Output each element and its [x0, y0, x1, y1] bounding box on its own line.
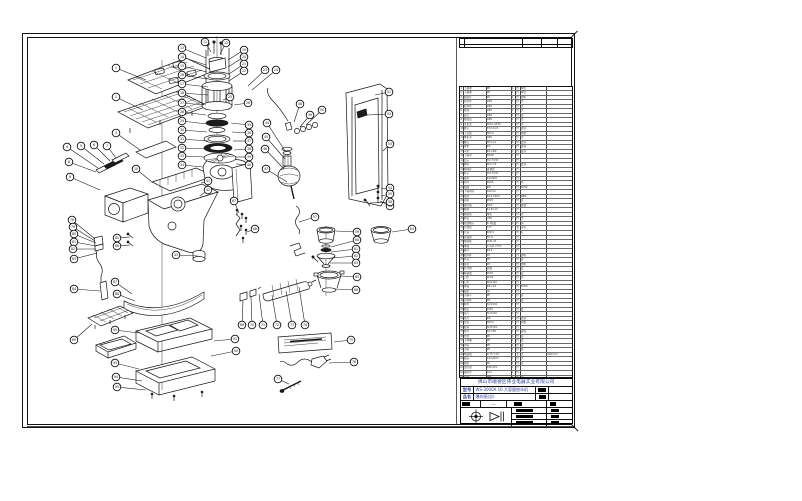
bom-cell: Φ18 — [487, 249, 512, 253]
balloon-number: 90 — [113, 328, 117, 332]
bom-cell: 本色 — [521, 87, 547, 91]
bom-cell — [521, 159, 547, 163]
bom-cell: 视窗盒 — [464, 118, 487, 122]
balloon-number: 59 — [355, 230, 359, 234]
bom-cell: Φ6×20 — [487, 285, 512, 289]
bom-cell: ABS — [487, 217, 512, 221]
bom-cell: 端盖 — [464, 308, 487, 312]
bom-cell: 镀锌 — [521, 145, 547, 149]
bom-cell: M4×70 — [487, 163, 512, 167]
balloon-number: 43 — [174, 253, 178, 257]
part-motor-stack — [202, 41, 236, 163]
bom-cell — [547, 335, 573, 339]
balloon-number: 64 — [410, 227, 414, 231]
balloon-number: 37 — [247, 139, 251, 143]
bom-cell: PP — [487, 299, 512, 303]
balloon-number: 27 — [180, 101, 184, 105]
bom-cell: 碳刷 — [464, 208, 487, 212]
bom-cell: Φ4×Φ9 — [487, 150, 512, 154]
balloon-number: 58 — [388, 200, 392, 204]
bom-cell: 白 — [521, 335, 547, 339]
bom-cell: PC — [487, 254, 512, 258]
bom-cell: 挡圈 — [464, 186, 487, 190]
bom-cell: 螺钉 — [464, 141, 487, 145]
bom-cell: 磁环 — [464, 249, 487, 253]
balloon-number: 17 — [180, 82, 184, 86]
bom-cell: 小漏斗 — [464, 294, 487, 298]
bom-cell: 量杯 — [464, 263, 487, 267]
part-small-grid-tray — [88, 306, 133, 329]
sheet-label — [536, 394, 549, 400]
balloon-number: 41 — [206, 179, 210, 183]
bom-cell: 刷盖 — [464, 217, 487, 221]
bom-cell: 青稞纸 — [487, 168, 512, 172]
balloon-number: 20 — [242, 55, 246, 59]
version-cell — [547, 401, 572, 407]
bom-cell: 轴套 — [464, 290, 487, 294]
part-bumper-band — [124, 292, 204, 316]
balloon-number: 19 — [242, 48, 246, 52]
bom-cell: 上盖板 — [464, 132, 487, 136]
bom-cell — [547, 100, 573, 104]
balloon-number: 71 — [261, 323, 265, 327]
bom-cell: 齿轮 — [464, 199, 487, 203]
bom-cell — [547, 168, 573, 172]
balloon-number: 9 — [69, 175, 71, 179]
bom-cell: Φ4 — [487, 145, 512, 149]
bom-cell: 面壳 — [464, 114, 487, 118]
balloon-number: 48 — [298, 102, 302, 106]
bom-cell: ABS — [487, 105, 512, 109]
balloon-number: 35 — [247, 123, 251, 127]
balloon-number: 51 — [387, 90, 391, 94]
balloon-number: 79 — [71, 225, 75, 229]
balloon-number: 86 — [115, 244, 119, 248]
bom-cell: SUS420 — [487, 312, 512, 316]
bom-cell: 透明 — [521, 96, 547, 100]
bom-cell: ADC12 — [487, 190, 512, 194]
drawing-page: 1234567891011121314151617181920212223242… — [0, 0, 802, 501]
bom-cell: 白 — [521, 114, 547, 118]
bom-cell: PP — [487, 91, 512, 95]
bom-cell — [547, 163, 573, 167]
part-screw-bottom — [280, 381, 301, 393]
bom-cell: PP — [487, 335, 512, 339]
bom-cell: 弹垫 — [464, 145, 487, 149]
bom-cell: POM — [487, 272, 512, 276]
balloon-number: 62 — [354, 254, 358, 258]
bom-cell: 按键 — [464, 109, 487, 113]
bom-cell: 16A250V — [487, 357, 512, 361]
part-cup-stack — [312, 227, 344, 292]
balloon-number: 33 — [180, 154, 184, 158]
bom-cell: 转子 — [464, 172, 487, 176]
bom-cell: FD-9 — [487, 236, 512, 240]
bom-cell: 镀锌 — [521, 127, 547, 131]
bom-cell — [521, 208, 547, 212]
bom-cell: 白 — [521, 258, 547, 262]
bom-cell — [547, 339, 573, 343]
bom-cell: 调速器 — [464, 236, 487, 240]
bom-cell — [547, 186, 573, 190]
bom-cell — [547, 362, 573, 366]
bom-cell: 黑 — [521, 136, 547, 140]
bom-cell — [521, 245, 547, 249]
balloon-number: 38 — [247, 147, 251, 151]
balloon-number: 81 — [72, 240, 76, 244]
balloon-number: 60 — [355, 238, 359, 242]
bom-cell: 白 — [521, 267, 547, 271]
bom-cell: 滚刀 — [464, 312, 487, 316]
balloon-number: 11 — [203, 40, 207, 44]
balloon-number: 8 — [68, 160, 70, 164]
bom-cell: PCB-V2 — [487, 240, 512, 244]
bom-cell: 垫片 — [464, 317, 487, 321]
drawn-date-cell — [547, 408, 572, 413]
balloon-number: 76 — [352, 360, 356, 364]
bom-cell: 镀锌 — [521, 141, 547, 145]
balloon-number: 34 — [180, 163, 184, 167]
scale-label — [461, 401, 481, 407]
bom-cell: 密封圈 — [464, 267, 487, 271]
balloon-number: 14 — [180, 55, 184, 59]
bom-cell — [547, 371, 573, 375]
balloon-number: 25 — [228, 95, 232, 99]
bom-cell: 弹簧 — [464, 285, 487, 289]
balloon-number: 67 — [232, 199, 236, 203]
bom-cell: 镀锌 — [521, 317, 547, 321]
bom-cell: 黑 — [521, 276, 547, 280]
bom-cell: 白 — [521, 199, 547, 203]
bom-cell — [547, 136, 573, 140]
balloon-number: 70 — [250, 323, 254, 327]
balloon-number: 32 — [180, 146, 184, 150]
leader-line — [259, 294, 263, 325]
bom-cell: 上格栅 — [464, 87, 487, 91]
bom-cell: Φ3×80 — [487, 330, 512, 334]
bom-cell — [547, 276, 573, 280]
bom-cell: 定子 — [464, 159, 487, 163]
exploded-diagram: 1234567891011121314151617181920212223242… — [0, 0, 802, 501]
approved-by-cell — [512, 420, 547, 425]
bom-cell — [547, 303, 573, 307]
bom-cell: 白 — [521, 294, 547, 298]
bom-cell: PC — [487, 263, 512, 267]
bom-cell: 红 — [521, 231, 547, 235]
balloon-number: 12 — [224, 41, 228, 45]
bom-cell — [547, 299, 573, 303]
bom-cell: 黑 — [521, 217, 547, 221]
bom-cell — [547, 348, 573, 352]
bom-cell — [547, 321, 573, 325]
balloon-number: 42 — [206, 188, 210, 192]
bom-cell — [547, 236, 573, 240]
balloon-number: 18 — [180, 91, 184, 95]
balloon-number: 29 — [180, 119, 184, 123]
bom-cell: 白 — [521, 348, 547, 352]
bom-cell: 黑 — [521, 213, 547, 217]
bom-cell: 电木 — [487, 213, 512, 217]
bom-cell — [547, 154, 573, 158]
bom-cell: 6200ZZ — [487, 177, 512, 181]
balloon-number: 10 — [134, 167, 138, 171]
bom-cell — [547, 226, 573, 230]
name-label: 品名 — [461, 394, 474, 400]
balloon-number: 66 — [354, 288, 358, 292]
bom-cell: 压料杯 — [464, 299, 487, 303]
balloon-number: 7 — [106, 144, 108, 148]
balloon-number: 36 — [247, 131, 251, 135]
balloon-number: 24 — [274, 68, 278, 72]
bom-cell — [547, 159, 573, 163]
bom-cell — [547, 366, 573, 370]
bom-cell: 大碗 — [464, 344, 487, 348]
bom-cell: 黑 — [521, 109, 547, 113]
balloon-number: 91 — [233, 337, 237, 341]
balloon-number: 74 — [303, 323, 307, 327]
bom-cell: 上轴承 — [464, 154, 487, 158]
bom-cell: 6×8×15 — [487, 208, 512, 212]
bom-cell: 左饰条 — [464, 100, 487, 104]
part-hook-wire — [290, 206, 305, 256]
balloon-number: 2 — [115, 95, 117, 99]
bom-cell: 白 — [521, 339, 547, 343]
bom-cell — [547, 177, 573, 181]
bom-cell — [547, 285, 573, 289]
bom-cell: 白 — [521, 299, 547, 303]
bom-cell: SPCC — [487, 132, 512, 136]
bom-cell: 线路板 — [464, 240, 487, 244]
scale-value: — — [481, 401, 507, 407]
model-label: 型号 — [461, 387, 474, 393]
bom-cell: 铜 — [521, 222, 547, 226]
balloon-number: 54 — [388, 186, 392, 190]
balloon-number: 77 — [276, 377, 280, 381]
balloon-number: 57 — [313, 215, 317, 219]
bom-cell: 45# — [487, 204, 512, 208]
bom-cell — [547, 245, 573, 249]
bom-cell: 油封 — [464, 195, 487, 199]
bom-cell — [547, 199, 573, 203]
pages-label — [536, 387, 549, 393]
bom-cell: 0.75²×3C — [487, 353, 512, 357]
bom-cell: 输出轴 — [464, 204, 487, 208]
leader-line — [116, 68, 146, 80]
bom-cell: 65Mn — [521, 285, 547, 289]
bom-cell: 支架 — [464, 321, 487, 325]
balloon-number: 92 — [234, 349, 238, 353]
balloon-number: 30 — [180, 128, 184, 132]
balloon-number: 47 — [264, 167, 268, 171]
bom-cell — [547, 96, 573, 100]
bom-cell: 电容 — [464, 245, 487, 249]
bom-cell: 联轴器 — [464, 272, 487, 276]
bom-cell: 线扣 — [464, 362, 487, 366]
bom-cell — [521, 240, 547, 244]
bom-cell: 视窗片 — [464, 96, 487, 100]
drawing-no — [507, 401, 547, 407]
bom-cell: 65Mn — [521, 186, 547, 190]
balloon-number: 3 — [115, 131, 117, 135]
balloon-number: 61 — [354, 247, 358, 251]
part-bottom-frame — [136, 357, 215, 401]
bom-cell — [547, 267, 573, 271]
bom-cell — [521, 281, 547, 285]
bom-cell — [547, 326, 573, 330]
part-mid-frame — [136, 318, 212, 352]
bom-cell — [547, 240, 573, 244]
bom-cell: 黑 — [521, 362, 547, 366]
bom-cell — [547, 217, 573, 221]
leader-line — [69, 162, 96, 172]
balloon-number: 31 — [180, 137, 184, 141]
bom-cell: 温控器 — [464, 366, 487, 370]
bom-cell — [547, 294, 573, 298]
bom-cell — [547, 204, 573, 208]
bom-cell — [547, 281, 573, 285]
balloon-number: 46 — [263, 147, 267, 151]
bom-cell — [521, 172, 547, 176]
bom-cell — [547, 123, 573, 127]
bom-cell: PP — [487, 348, 512, 352]
bom-cell: ABS — [487, 114, 512, 118]
balloon-number: 6 — [93, 143, 95, 147]
bom-cell — [521, 326, 547, 330]
part-small-tray — [96, 336, 136, 358]
bom-cell — [547, 105, 573, 109]
bom-cell: 6.3插簧 — [487, 222, 512, 226]
bom-cell — [547, 357, 573, 361]
title-block: 佛山市顺德区伟业电器实业有限公司 型号 WS-3000A 16 大容量刨冰机 品… — [460, 378, 573, 424]
bom-cell: 电机罩 — [464, 136, 487, 140]
bom-cell: 开关 — [464, 231, 487, 235]
bom-cell — [547, 195, 573, 199]
balloon-number: 53 — [388, 142, 392, 146]
balloon-number: 13 — [180, 46, 184, 50]
balloon-number: 45 — [264, 135, 268, 139]
bom-cell: 挂钩 — [464, 326, 487, 330]
revision-table — [459, 38, 573, 48]
bom-cell: 黑 — [521, 357, 547, 361]
bom-cell — [521, 366, 547, 370]
bom-cell: NBR — [521, 195, 547, 199]
bom-cell: ABS — [487, 100, 512, 104]
bom-cell: 螺钉 — [464, 127, 487, 131]
drawn-by-cell — [512, 408, 547, 413]
bom-cell — [547, 172, 573, 176]
balloon-number: 4 — [66, 145, 68, 149]
bom-cell: KCD4 — [487, 231, 512, 235]
bom-cell: SUS420 — [487, 281, 512, 285]
bom-cell: PA — [487, 362, 512, 366]
bom-cell: 杯盖 — [464, 258, 487, 262]
bom-cell: 10A — [487, 371, 512, 375]
bom-cell: POM — [487, 308, 512, 312]
bom-cell — [547, 231, 573, 235]
parts-list-table: 1上格栅PP1件本色2下格栅PP1件本色3视窗片PC1件透明4左饰条ABS1件黑… — [459, 86, 573, 379]
bom-cell: POM — [487, 199, 512, 203]
signature-grid — [512, 408, 572, 426]
bom-cell: PA66 — [487, 181, 512, 185]
bom-cell — [521, 312, 547, 316]
bom-cell — [521, 303, 547, 307]
balloon-number: 88 — [115, 292, 119, 296]
leader-line — [299, 287, 305, 325]
bom-cell: 碳刷架 — [464, 213, 487, 217]
bom-cell: 电源线 — [464, 353, 487, 357]
leader-line — [70, 177, 100, 190]
bom-cell: PP — [487, 258, 512, 262]
bom-cell: ABS — [487, 118, 512, 122]
balloon-number: 23 — [263, 68, 267, 72]
bom-cell: SPCC — [487, 321, 512, 325]
part-trim-wedges — [96, 153, 129, 173]
bom-cell — [547, 190, 573, 194]
part-window-box — [105, 188, 148, 222]
bom-cell — [521, 290, 547, 294]
balloon-number: 26 — [246, 101, 250, 105]
leader-line — [116, 133, 140, 150]
bom-cell: 喷粉 — [521, 321, 547, 325]
balloon-number: 21 — [242, 62, 246, 66]
bom-cell: 黑 — [521, 105, 547, 109]
balloon-number: 16 — [180, 73, 184, 77]
bom-cell — [547, 258, 573, 262]
balloon-number: 5 — [80, 144, 82, 148]
bom-cell — [547, 312, 573, 316]
bom-cell — [521, 177, 547, 181]
balloon-number: 44 — [265, 121, 269, 125]
bom-cell — [521, 371, 547, 375]
balloon-number: 94 — [114, 375, 118, 379]
bom-cell — [547, 330, 573, 334]
balloon-number: 78 — [70, 218, 74, 222]
bom-cell — [547, 127, 573, 131]
bom-cell: 黑 — [521, 118, 547, 122]
balloon-number: 63 — [354, 261, 358, 265]
bom-cell: 本色 — [521, 91, 547, 95]
balloon-number: 65 — [355, 275, 359, 279]
bom-cell — [547, 114, 573, 118]
bom-cell: 搅拌杯 — [464, 254, 487, 258]
part-roller — [240, 279, 316, 301]
bom-cell — [547, 249, 573, 253]
part-far-bowl — [371, 227, 391, 244]
bom-cell: H05VV-F — [547, 353, 573, 357]
bom-cell: 黑 — [521, 123, 547, 127]
bom-cell: 风叶 — [464, 181, 487, 185]
bom-cell: 镀铬 — [521, 204, 547, 208]
bom-cell — [521, 190, 547, 194]
balloon-number: 93 — [113, 361, 117, 365]
balloon-number: 40 — [247, 163, 251, 167]
bom-cell: 插头 — [464, 357, 487, 361]
bom-cell: 硅胶 — [487, 267, 512, 271]
balloon-number: 85 — [115, 236, 119, 240]
checked-by-cell — [512, 414, 547, 419]
bom-cell: HU-7030 — [487, 159, 512, 163]
bom-cell — [547, 91, 573, 95]
revision-divider — [460, 44, 572, 45]
balloon-number: 22 — [242, 69, 246, 73]
bom-cell: ABS — [487, 136, 512, 140]
bom-cell — [547, 150, 573, 154]
bom-cell: PP — [487, 339, 512, 343]
balloon-number: 84 — [72, 287, 76, 291]
part-left-bracket-rod — [94, 233, 133, 300]
bom-cell — [521, 249, 547, 253]
bom-cell: 黑 — [521, 353, 547, 357]
